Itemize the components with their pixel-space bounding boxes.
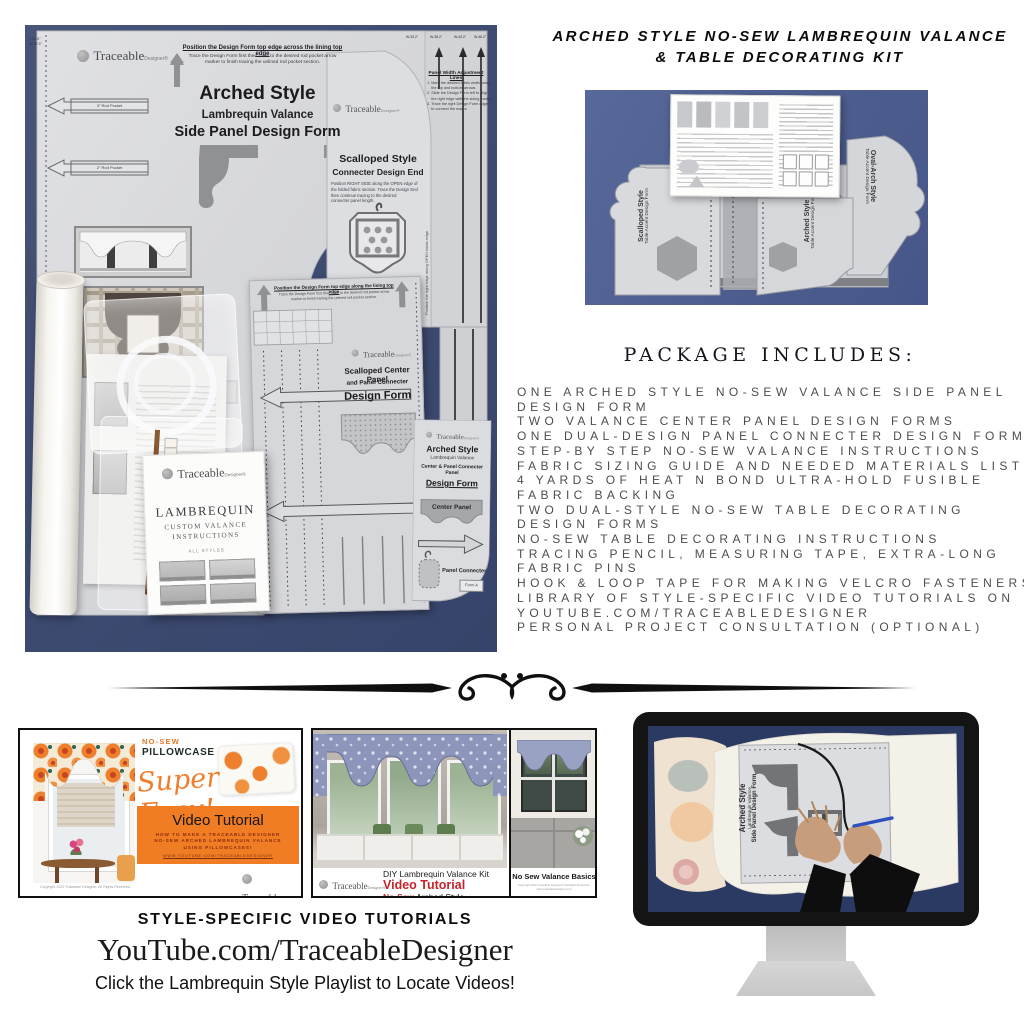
thumb1-banner: Video Tutorial HOW TO MAKE A TRACEABLE D… — [137, 806, 299, 864]
video-thumbnail-diy-kit: TraceableDesigner® DIY Lambrequin Valanc… — [311, 728, 597, 898]
booklet-sub2: INSTRUCTIONS — [146, 530, 266, 542]
open-edge-note: Position the right edge along OPEN fabri… — [424, 185, 429, 315]
tracing-video-frame — [648, 726, 964, 912]
thumb1-banner-lines: HOW TO MAKE A TRACEABLE DESIGNER NO-SEW … — [137, 832, 299, 851]
table-form-label-scalloped: Scalloped Style Table Accent Design Form — [638, 171, 650, 261]
brand-leaf-icon — [162, 468, 173, 479]
table-form-label-oval-arch: Oval-Arch Style Table Accent Design Form — [864, 131, 876, 221]
center-form-title3: Design Form — [337, 389, 419, 403]
thumb2-brand-logo: TraceableDesigner® — [319, 876, 386, 894]
table-kit-photo: Scalloped Style Table Accent Design Form… — [585, 90, 928, 305]
form-style-title: Arched Style — [170, 83, 345, 105]
panel-width-title: Panel Width Adjustment Lines — [425, 71, 487, 81]
flower-vase — [67, 837, 85, 855]
title-line-1: ARCHED STYLE NO-SEW LAMBREQUIN VALANCE — [545, 26, 1015, 47]
thumb2-basics-photo — [509, 730, 597, 868]
video-thumbnail-pillowcase: NO-SEW PILLOWCASE VALANCE Super Easy! Vi… — [18, 728, 303, 898]
youtube-channel-text: YouTube.com/TraceableDesigner — [55, 932, 555, 968]
table — [41, 859, 115, 868]
oval-arch-form-shape — [847, 136, 924, 275]
booklet-logo: TraceableDesigner® — [144, 462, 265, 484]
card-center-panel-label: Center Panel — [421, 504, 482, 512]
panel-width-steps: 1. Mark the desired fabric width using t… — [427, 81, 492, 112]
form-subtitle: Lambrequin Valance — [170, 109, 345, 121]
thumb2-basics-caption-text: No Sew Valance Basics — [511, 872, 597, 881]
thumb2-bay-window-photo — [313, 730, 507, 868]
thumb1-window-photo — [33, 743, 135, 883]
thumb2-style-line: No-Sew Arched Style — [383, 892, 464, 898]
thumb2-basics-copyright: Copyright 2022 Traceable Designer® All R… — [513, 883, 595, 891]
thumb1-banner-title: Video Tutorial — [137, 812, 299, 829]
scalloped-medallion-icon — [350, 204, 405, 273]
thumb2-basics-valance — [517, 740, 591, 774]
footer-note: Click the Lambrequin Style Playlist to L… — [55, 973, 555, 994]
booklet-title: LAMBREQUIN — [145, 502, 265, 521]
brand-logo: TraceableDesigner® — [77, 47, 168, 65]
screen-form-labels: Arched Style Lambrequin Valance Side Pan… — [738, 748, 758, 868]
card-line: Center & Panel Connecter Panel — [417, 464, 486, 477]
brand-logo-small: Scalloped Style TraceableDesigner® — [333, 99, 400, 117]
brand-leaf-icon — [319, 880, 328, 889]
booklet-style-photos — [159, 558, 256, 605]
page-title: ARCHED STYLE NO-SEW LAMBREQUIN VALANCE &… — [545, 26, 1015, 68]
thumb2-caption-strip: TraceableDesigner® DIY Lambrequin Valanc… — [313, 868, 507, 896]
connecter-design-end-title: Connecter Design End — [328, 167, 428, 177]
kit-contents-photo: L-26.5" W-22.3" TraceableDesigner® Posit… — [25, 25, 497, 652]
monitor-stand-neck — [766, 926, 846, 962]
thumb2-basics-caption: No Sew Valance Basics Copyright 2022 Tra… — [509, 868, 597, 896]
connecter-instructions: Position RIGHT SIDE along the OPEN edge … — [331, 181, 418, 204]
thumb1-banner-link: WWW.YOUTUBE.COM/TRACEABLEDESIGNER — [137, 854, 299, 858]
card-form-number: Form A — [460, 582, 483, 587]
instruction-booklet: TraceableDesigner® LAMBREQUIN CUSTOM VAL… — [142, 451, 270, 615]
monitor-screen: Arched Style Lambrequin Valance Side Pan… — [648, 726, 964, 912]
rod-pocket-label-1: 3" Rod Pocket — [73, 103, 146, 108]
product-listing-image: L-26.5" W-22.3" TraceableDesigner® Posit… — [0, 0, 1024, 1024]
card-name: Design Form — [417, 478, 486, 489]
table-instruction-sheet — [670, 94, 841, 197]
title-line-2: & TABLE DECORATING KIT — [545, 47, 1015, 68]
poppy-valance — [33, 743, 135, 803]
brand-logo-small: TraceableDesigner® — [420, 426, 485, 445]
tick-label-2: W-38.2" — [430, 35, 442, 39]
brand-leaf-icon — [242, 874, 252, 884]
fold-edge-note: the folded fabric edge to trace — [26, 195, 32, 315]
brand-leaf-icon — [333, 104, 341, 112]
form-name: Side Panel Design Form — [165, 124, 350, 140]
footer-heading: STYLE-SPECIFIC VIDEO TUTORIALS — [55, 911, 555, 929]
brand-leaf-icon — [77, 50, 89, 62]
window-photo-lace — [75, 227, 191, 277]
tick-label-1: W-33.2" — [406, 35, 418, 39]
booklet-note: ALL STYLES — [147, 546, 267, 555]
package-includes-list: ONE ARCHED STYLE NO-SEW VALANCE SIDE PAN… — [517, 385, 1024, 635]
brand-leaf-icon — [352, 350, 359, 357]
thumb2-video-title: Video Tutorial — [383, 878, 465, 892]
brand-logo-small: TraceableDesigner® — [351, 343, 411, 363]
fusible-backing-roll — [29, 277, 83, 616]
package-includes-heading: PACKAGE INCLUDES: — [540, 344, 1000, 366]
orange-pillow — [117, 855, 135, 881]
sheet-diagram-grid — [783, 154, 829, 186]
card-panel-connecter-label: Panel Connecter — [442, 568, 486, 575]
scalloped-style-title: Scalloped Style — [328, 153, 428, 165]
tick-label-3: W-43.2" — [454, 35, 466, 39]
card-style: Arched Style — [418, 444, 487, 455]
tick-label-4: W-48.2" — [474, 35, 486, 39]
brand-leaf-icon — [426, 431, 432, 437]
ornamental-divider — [100, 666, 924, 710]
thumb1-copyright: Copyright 2022 Traceable Designer. All R… — [40, 885, 131, 889]
monitor-stand-base — [736, 961, 876, 996]
center-panel-design-form: Position the Design Form top edge along … — [249, 276, 430, 614]
thumb1-brand-logo: TraceableDesigner® — [242, 870, 301, 898]
arched-connecter-card: TraceableDesigner® Arched Style Lambrequ… — [412, 419, 492, 603]
thumb2-valance — [313, 734, 507, 800]
form-header-sub: Trace the Design Form first then raise t… — [180, 54, 345, 67]
white-flowers — [573, 826, 593, 846]
thumb1-tag: NO-SEW — [142, 737, 180, 746]
center-form-graphics — [250, 277, 429, 613]
card-subtitle: Lambrequin Valance — [418, 456, 487, 462]
corner-dimensions-w: W-22.3" — [29, 42, 42, 46]
thumb2-cabinet — [317, 834, 503, 860]
rod-pocket-label-2: 2" Rod Pocket — [73, 165, 146, 170]
